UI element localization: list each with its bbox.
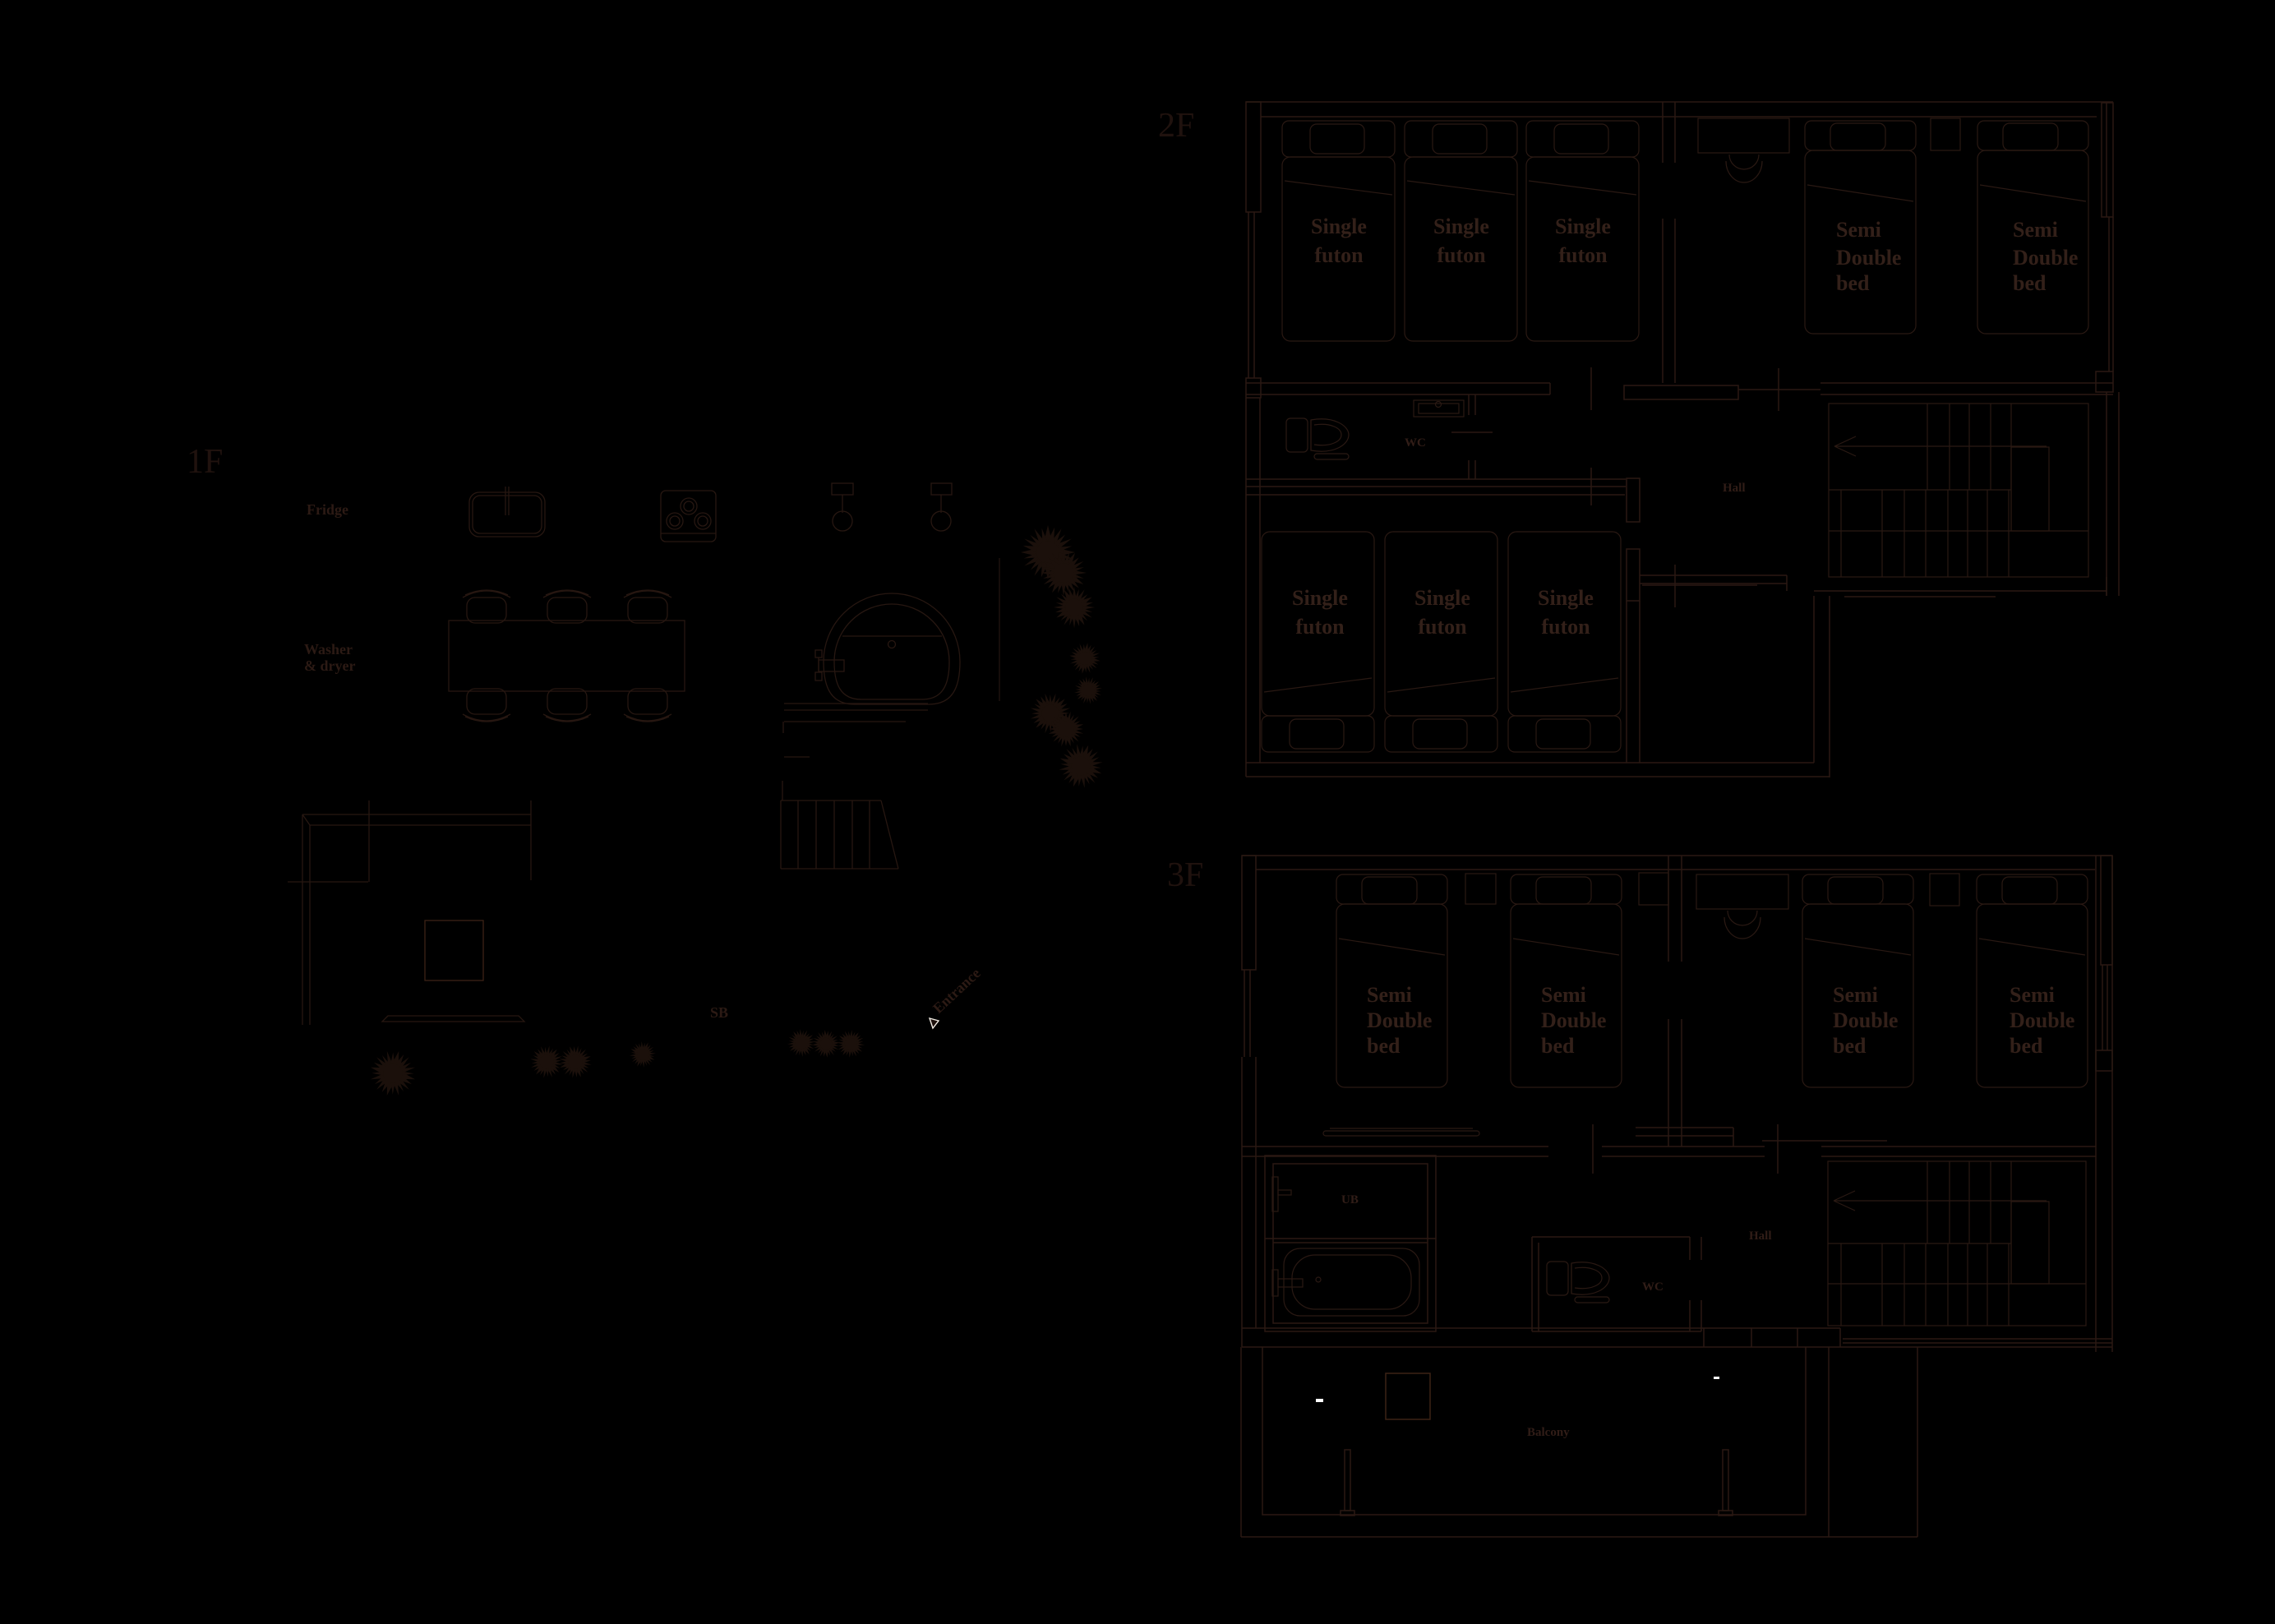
svg-text:& dryer: & dryer — [304, 657, 355, 674]
svg-text:Semi: Semi — [1541, 983, 1586, 1007]
svg-text:Balcony: Balcony — [1527, 1426, 1570, 1439]
svg-text:Semi: Semi — [2013, 218, 2058, 242]
svg-text:Semi: Semi — [1367, 983, 1412, 1007]
svg-text:Fridge: Fridge — [307, 501, 348, 518]
svg-text:futon: futon — [1314, 243, 1364, 267]
svg-text:futon: futon — [1437, 243, 1486, 267]
svg-text:SB: SB — [710, 1004, 728, 1021]
svg-text:Single: Single — [1414, 586, 1470, 610]
svg-text:Semi: Semi — [1836, 218, 1881, 242]
svg-text:WC: WC — [1642, 1280, 1664, 1294]
svg-text:Double: Double — [1833, 1008, 1898, 1032]
svg-text:bed: bed — [2010, 1034, 2043, 1058]
svg-text:UB: UB — [1341, 1193, 1359, 1206]
svg-text:Washer: Washer — [304, 641, 353, 657]
svg-text:1F: 1F — [187, 443, 223, 481]
svg-text:futon: futon — [1558, 243, 1608, 267]
svg-text:futon: futon — [1541, 615, 1590, 639]
svg-text:2F: 2F — [1158, 107, 1194, 145]
svg-text:bed: bed — [1367, 1034, 1401, 1058]
svg-text:Single: Single — [1311, 215, 1367, 238]
svg-text:futon: futon — [1418, 615, 1467, 639]
svg-text:Semi: Semi — [1833, 983, 1878, 1007]
svg-text:WC: WC — [1405, 436, 1426, 450]
svg-text:Entrance: Entrance — [930, 965, 984, 1017]
svg-text:Semi: Semi — [2010, 983, 2055, 1007]
svg-text:3F: 3F — [1167, 856, 1203, 894]
svg-text:Hall: Hall — [1749, 1230, 1772, 1243]
svg-text:bed: bed — [1833, 1034, 1867, 1058]
svg-text:Double: Double — [2010, 1008, 2074, 1032]
svg-text:futon: futon — [1295, 615, 1345, 639]
svg-text:Single: Single — [1555, 215, 1611, 238]
svg-text:bed: bed — [1836, 271, 1870, 295]
svg-text:Double: Double — [2013, 246, 2078, 270]
svg-text:bed: bed — [1541, 1034, 1575, 1058]
svg-text:Single: Single — [1433, 215, 1489, 238]
svg-text:Double: Double — [1541, 1008, 1606, 1032]
svg-text:bed: bed — [2013, 271, 2047, 295]
svg-text:Hall: Hall — [1723, 482, 1746, 495]
svg-text:Single: Single — [1292, 586, 1348, 610]
svg-text:Double: Double — [1367, 1008, 1432, 1032]
svg-text:Single: Single — [1538, 586, 1594, 610]
svg-text:Double: Double — [1836, 246, 1901, 270]
